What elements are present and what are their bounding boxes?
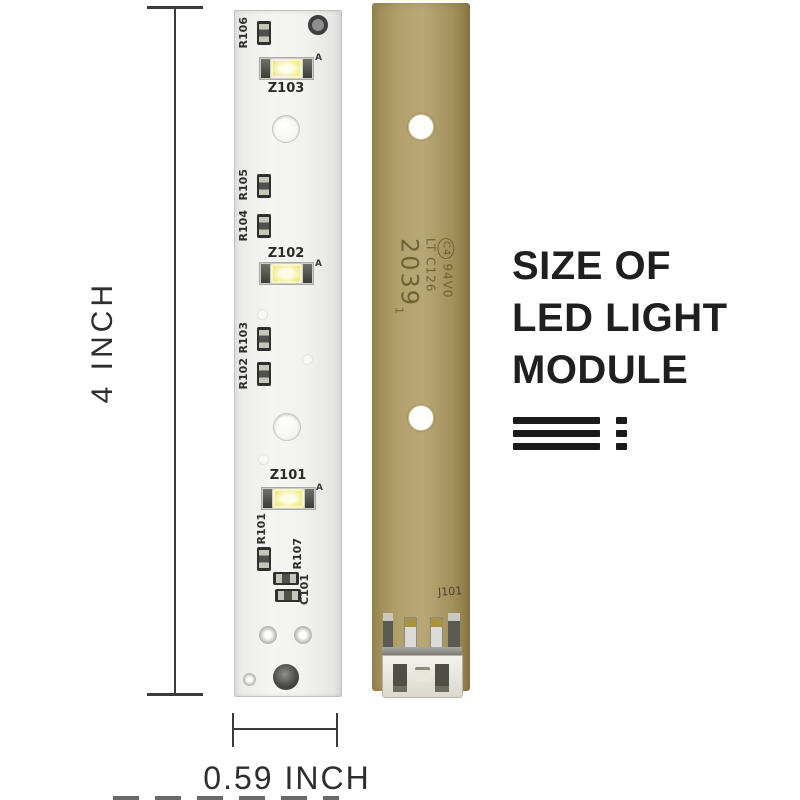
led-z103-label: Z103: [261, 81, 311, 96]
caption-line-2: LED LIGHT: [512, 292, 752, 344]
cropped-caption-remnant: [113, 796, 339, 800]
pcb-stamp: C494V0 LT C126 20391: [386, 238, 455, 316]
led-z101-label: Z101: [263, 468, 313, 483]
mount-hole-1: [272, 115, 300, 143]
resistor-r103: [257, 327, 271, 351]
connector-slot-right: [435, 664, 449, 692]
resistor-r106: [257, 21, 271, 45]
connector-cap-left: [383, 613, 393, 621]
led-pcb-back: C494V0 LT C126 20391 J101: [372, 3, 470, 691]
date-code: 2039: [395, 238, 423, 307]
solder-pad-left: [259, 626, 277, 644]
resistor-label-r104: R104: [238, 210, 249, 241]
led-z101-anode-mark: A: [316, 483, 323, 493]
flammability-rating: 94V0: [440, 263, 454, 298]
resistor-label-r103: R103: [238, 322, 249, 353]
mount-hole-back-1: [408, 114, 434, 140]
led-pcb-front: R106 A Z103 R105 R104 Z102 A R103 R102 Z…: [234, 10, 342, 697]
resistor-label-r106: R106: [238, 17, 249, 48]
mount-hole-2: [273, 413, 301, 441]
resistor-label-r105: R105: [238, 169, 249, 200]
mount-hole-metal: [273, 664, 299, 690]
via-dot: [257, 309, 268, 320]
connector-cap-right: [448, 613, 460, 621]
height-dimension-cap-top: [147, 6, 203, 9]
led-z102: [259, 262, 314, 285]
list-lines-icon: [513, 417, 633, 457]
list-bullet-1: [616, 417, 627, 424]
caption-block: SIZE OF LED LIGHT MODULE: [512, 240, 752, 396]
capacitor-c101: [275, 589, 301, 602]
via-dot: [302, 354, 313, 365]
resistor-label-r102: R102: [238, 358, 249, 389]
caption-line-3: MODULE: [512, 344, 752, 396]
led-z101: [261, 487, 316, 510]
list-line-1: [513, 417, 600, 424]
stamp-line-cert: C494V0: [437, 238, 454, 316]
led-z103-anode-mark: A: [315, 53, 322, 63]
height-dimension-line: [174, 8, 176, 695]
mount-hole-back-2: [408, 405, 434, 431]
via-dot: [258, 454, 269, 465]
list-bullet-3: [616, 443, 627, 450]
date-code-subscript: 1: [393, 307, 406, 316]
width-dimension-tick-left: [232, 713, 234, 747]
mount-hole-small: [308, 15, 328, 35]
list-bullet-2: [616, 430, 627, 437]
led-z103: [259, 57, 314, 80]
height-dimension-label: 4 INCH: [86, 281, 120, 403]
connector-slot-left: [393, 664, 407, 692]
solder-pad-small: [243, 673, 256, 686]
led-z102-label: Z102: [261, 246, 311, 261]
resistor-r105: [257, 174, 271, 198]
height-dimension-cap-bottom: [147, 693, 203, 696]
resistor-label-r101: R101: [256, 513, 267, 544]
connector-housing: [382, 655, 463, 698]
width-dimension-tick-right: [336, 713, 338, 747]
solder-pad-right: [294, 626, 312, 644]
stamp-line-date: 20391: [386, 238, 423, 316]
product-size-diagram: 4 INCH 0.59 INCH R106 A Z103 R105 R104 Z…: [0, 0, 800, 800]
stamp-line-code: LT C126: [422, 238, 437, 316]
caption-line-1: SIZE OF: [512, 240, 752, 292]
resistor-r102: [257, 362, 271, 386]
width-dimension-line: [233, 728, 338, 730]
resistor-label-r107: R107: [292, 538, 303, 569]
resistor-r107: [273, 572, 299, 585]
connector-latch-notch: [415, 667, 430, 682]
resistor-r104: [257, 214, 271, 238]
width-dimension-label: 0.59 INCH: [192, 760, 382, 797]
cert-circle-mark: C4: [437, 238, 454, 259]
led-z102-anode-mark: A: [315, 259, 322, 269]
connector-j101: [382, 597, 464, 703]
resistor-r101: [257, 547, 271, 571]
list-line-2: [513, 430, 600, 437]
list-line-3: [513, 443, 600, 450]
